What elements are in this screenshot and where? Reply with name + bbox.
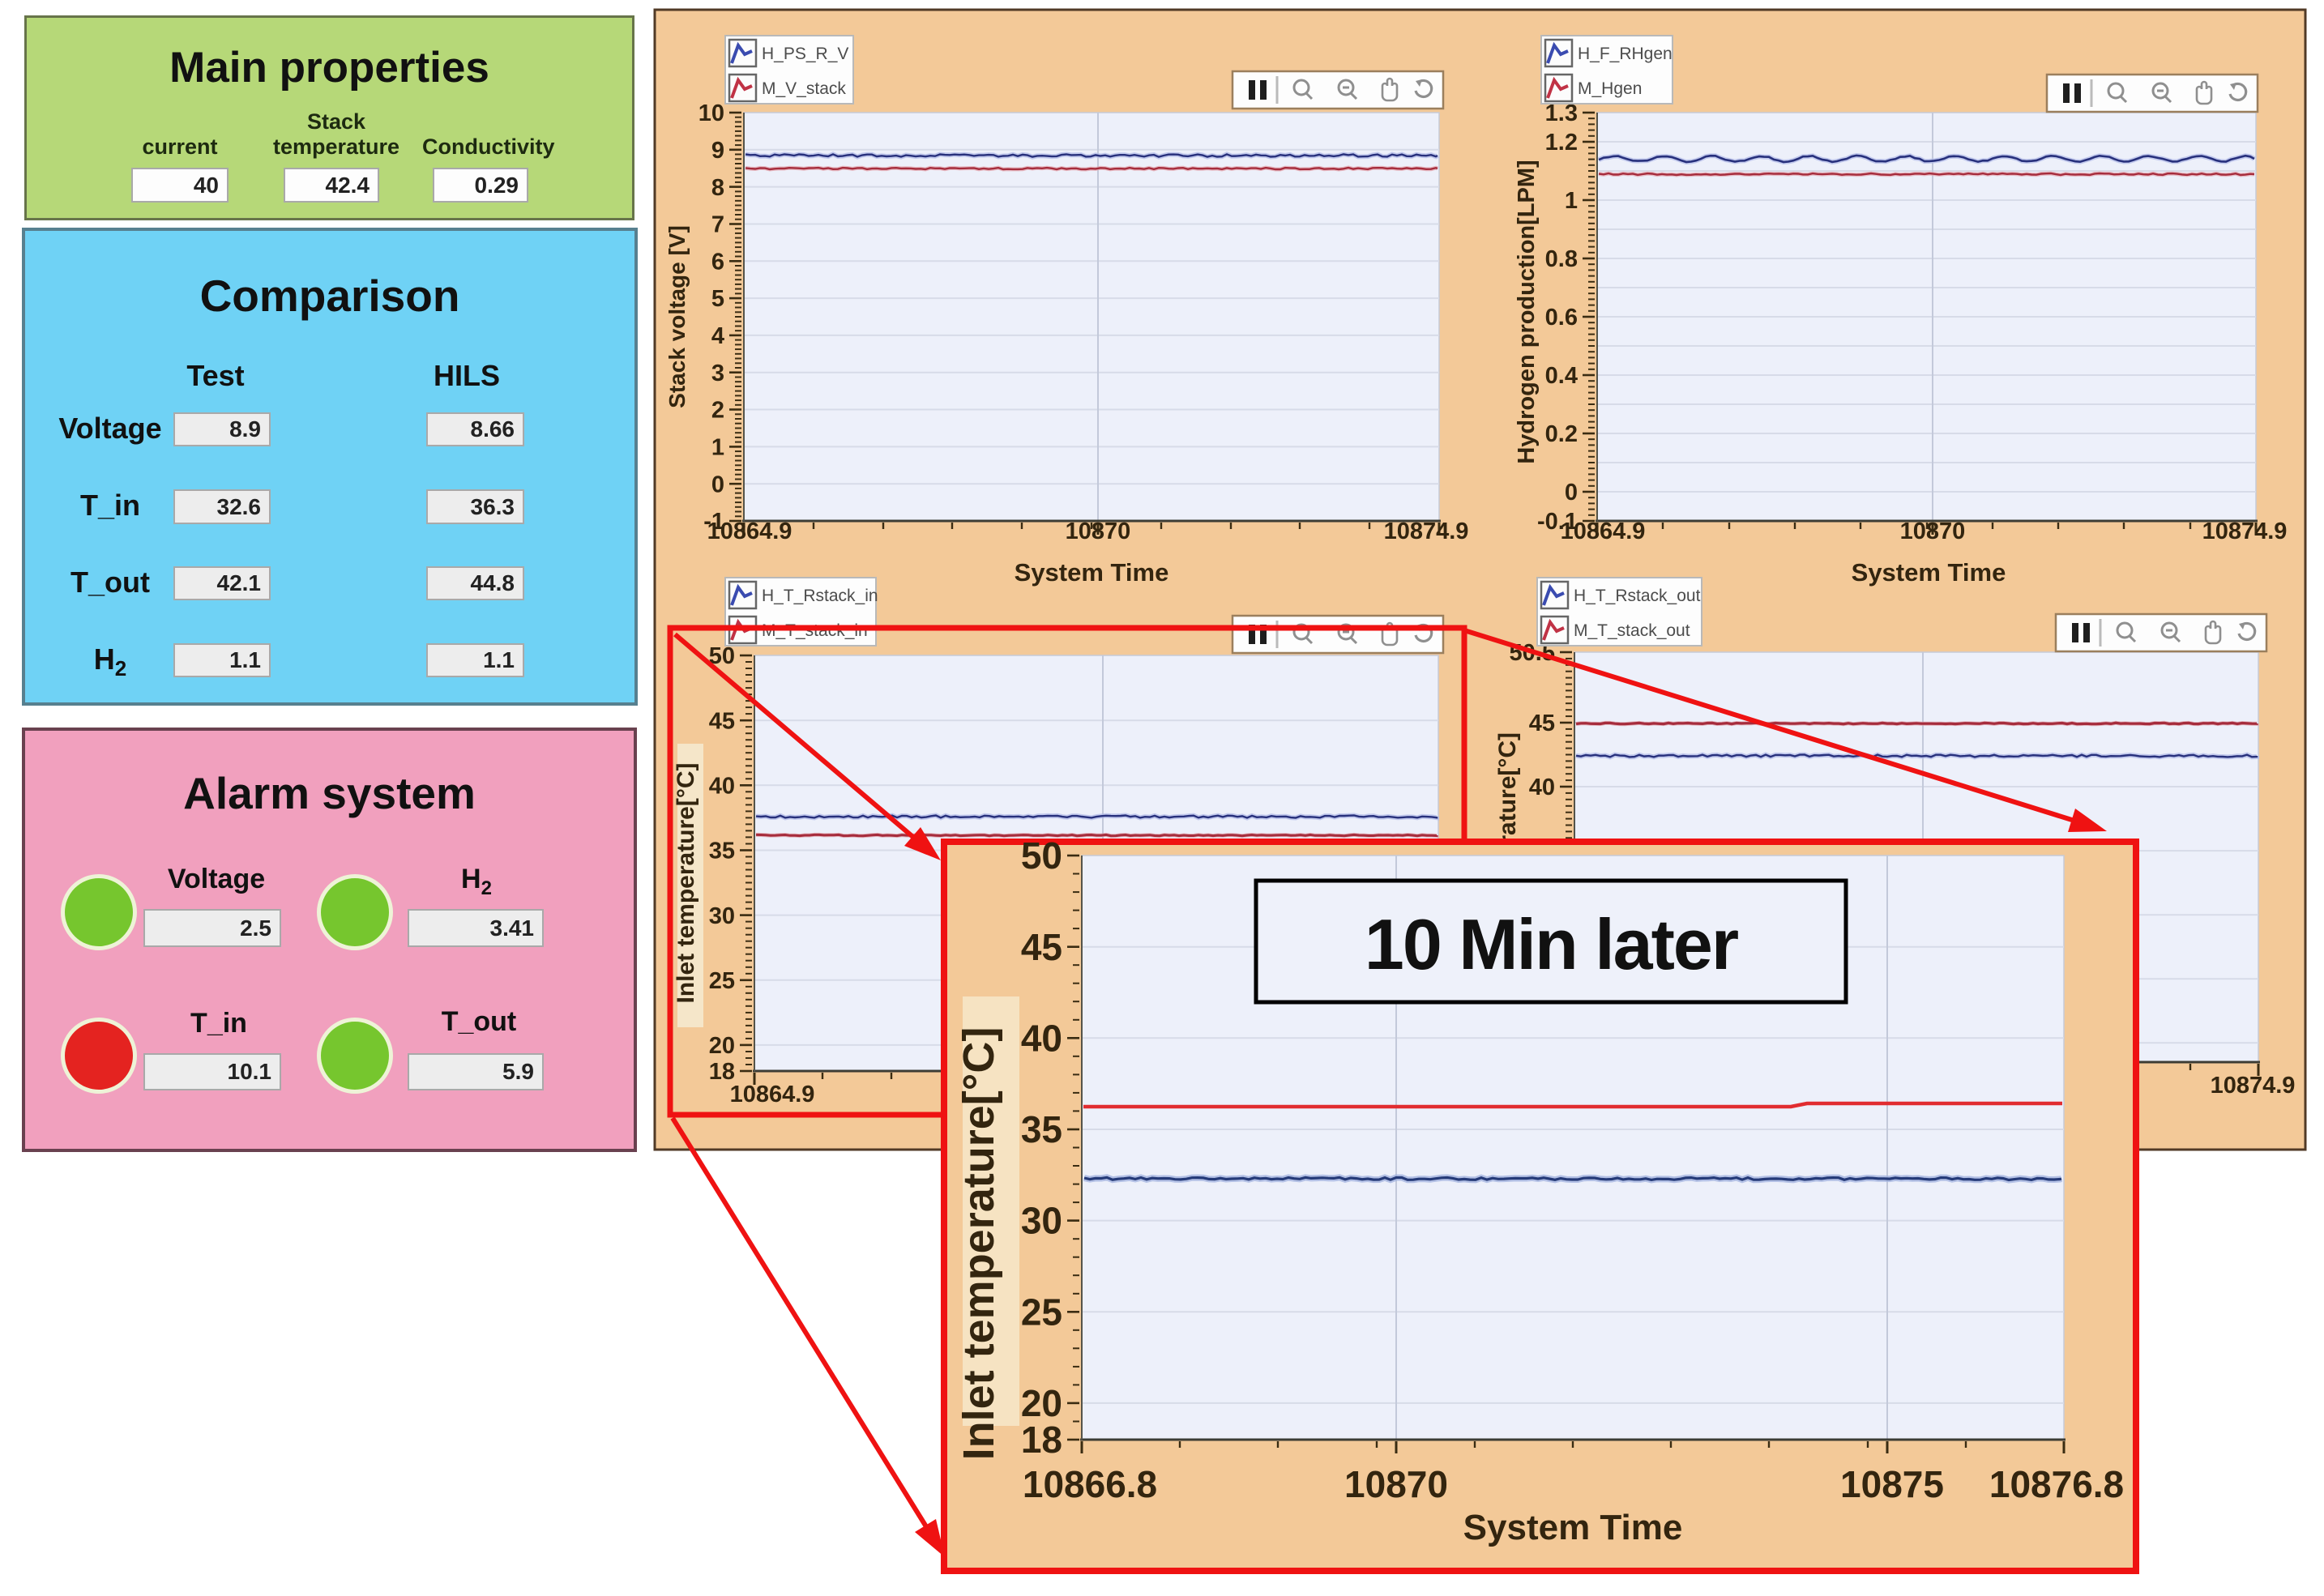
svg-text:45: 45 — [709, 708, 735, 734]
svg-text:50: 50 — [1021, 834, 1062, 877]
svg-text:9: 9 — [711, 138, 724, 164]
svg-text:M_T_stack_out: M_T_stack_out — [1574, 621, 1690, 640]
svg-text:System Time: System Time — [1463, 1508, 1683, 1547]
svg-text:10870: 10870 — [1900, 518, 1966, 544]
svg-text:1: 1 — [711, 435, 724, 461]
svg-text:Stack voltage [V]: Stack voltage [V] — [664, 225, 690, 408]
svg-text:0.8: 0.8 — [1545, 246, 1578, 272]
svg-text:H_T_Rstack_in: H_T_Rstack_in — [762, 587, 878, 605]
svg-text:Inlet temperature[°C]: Inlet temperature[°C] — [673, 762, 699, 1003]
svg-text:10876.8: 10876.8 — [1989, 1463, 2124, 1505]
svg-text:45: 45 — [1021, 926, 1062, 968]
svg-text:System Time: System Time — [1015, 558, 1169, 587]
svg-text:4: 4 — [711, 323, 724, 349]
svg-text:0: 0 — [711, 472, 724, 497]
svg-text:1: 1 — [1565, 188, 1578, 214]
svg-text:10875: 10875 — [1840, 1463, 1944, 1505]
svg-text:M_Hgen: M_Hgen — [1578, 79, 1642, 98]
svg-text:1.2: 1.2 — [1545, 130, 1578, 156]
svg-text:5: 5 — [711, 286, 724, 312]
svg-text:35: 35 — [709, 839, 735, 864]
svg-text:7: 7 — [711, 212, 724, 238]
svg-text:25: 25 — [1021, 1291, 1062, 1333]
svg-text:10870: 10870 — [1066, 518, 1131, 544]
svg-text:10874.9: 10874.9 — [1384, 518, 1469, 544]
svg-text:6: 6 — [711, 249, 724, 275]
svg-text:Hydrogen production[LPM]: Hydrogen production[LPM] — [1514, 160, 1540, 463]
svg-text:10864.9: 10864.9 — [730, 1082, 815, 1107]
svg-text:20: 20 — [709, 1033, 735, 1059]
svg-text:0: 0 — [1565, 480, 1578, 506]
svg-text:0.2: 0.2 — [1545, 421, 1578, 447]
svg-text:30: 30 — [1021, 1200, 1062, 1242]
svg-text:10864.9: 10864.9 — [707, 518, 792, 544]
svg-text:40: 40 — [1021, 1017, 1062, 1059]
svg-text:45: 45 — [1529, 711, 1555, 736]
svg-text:M_V_stack: M_V_stack — [762, 79, 846, 98]
svg-text:0.4: 0.4 — [1545, 363, 1578, 389]
svg-text:10874.9: 10874.9 — [2202, 518, 2288, 544]
svg-text:40: 40 — [709, 773, 735, 799]
svg-text:10874.9: 10874.9 — [2211, 1073, 2296, 1099]
svg-text:18: 18 — [1021, 1419, 1062, 1461]
svg-text:35: 35 — [1021, 1108, 1062, 1150]
svg-text:H_PS_R_V: H_PS_R_V — [762, 45, 848, 63]
svg-text:H_F_RHgen: H_F_RHgen — [1578, 45, 1673, 63]
svg-text:25: 25 — [709, 968, 735, 994]
svg-text:40: 40 — [1529, 775, 1555, 800]
svg-text:Inlet temperature[°C]: Inlet temperature[°C] — [955, 1027, 1003, 1461]
svg-text:10866.8: 10866.8 — [1023, 1463, 1157, 1505]
svg-text:0.6: 0.6 — [1545, 305, 1578, 331]
svg-text:3: 3 — [711, 361, 724, 386]
svg-text:30: 30 — [709, 903, 735, 929]
svg-text:H_T_Rstack_out: H_T_Rstack_out — [1574, 587, 1701, 605]
svg-text:8: 8 — [711, 175, 724, 201]
svg-text:10870: 10870 — [1344, 1463, 1448, 1505]
svg-text:System Time: System Time — [1852, 558, 2006, 587]
svg-text:10: 10 — [698, 100, 724, 126]
svg-text:10864.9: 10864.9 — [1561, 518, 1646, 544]
svg-text:2: 2 — [711, 398, 724, 424]
svg-text:10 Min later: 10 Min later — [1365, 904, 1738, 984]
